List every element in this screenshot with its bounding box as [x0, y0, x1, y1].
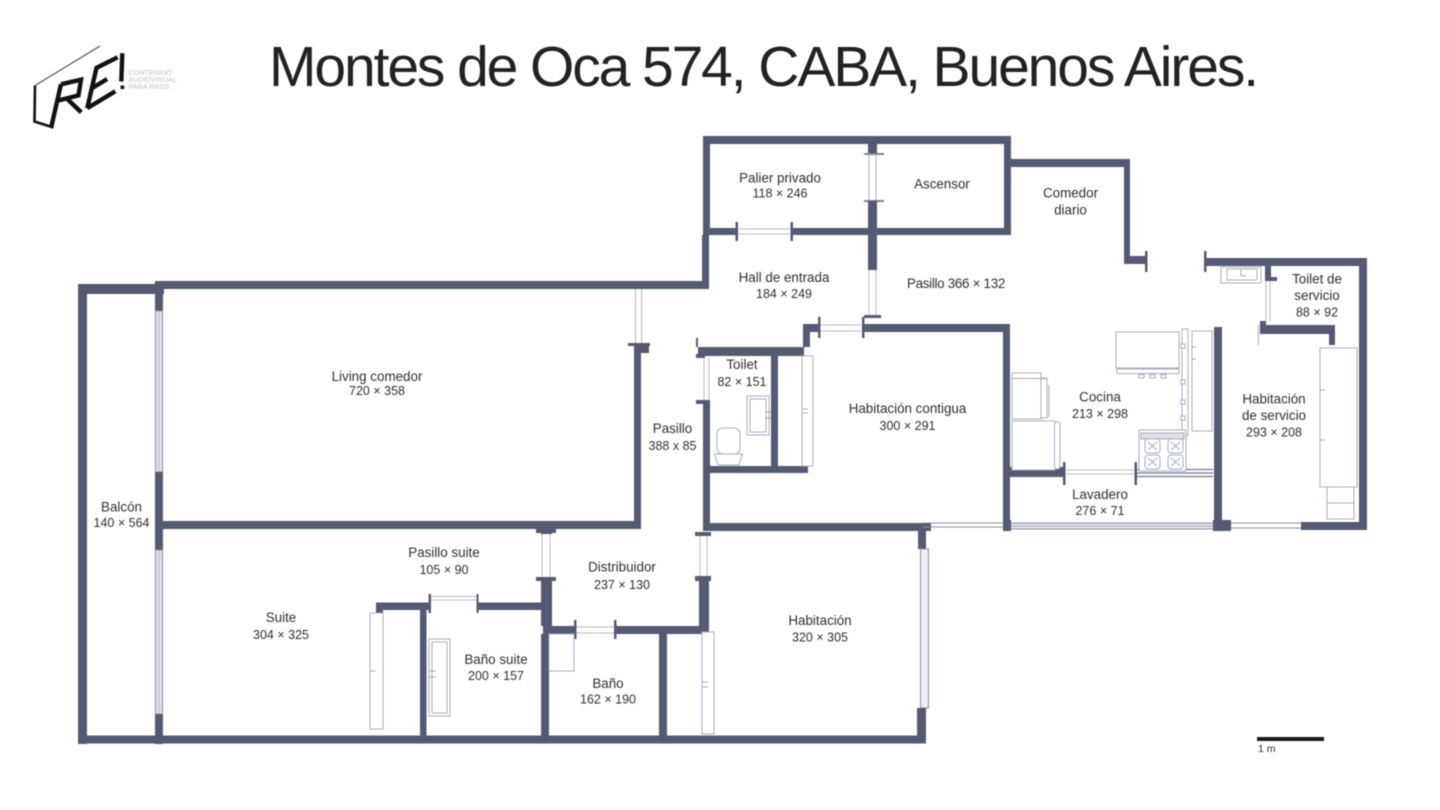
svg-text:105 × 90: 105 × 90 [419, 563, 468, 577]
svg-text:320 × 305: 320 × 305 [792, 631, 848, 645]
svg-text:Lavadero: Lavadero [1072, 487, 1128, 502]
svg-text:88 × 92: 88 × 92 [1296, 306, 1338, 320]
svg-text:Pasillo: Pasillo [653, 421, 692, 436]
svg-text:1 m: 1 m [1258, 743, 1276, 755]
svg-text:Habitación contigua: Habitación contigua [849, 401, 967, 416]
svg-text:82 × 151: 82 × 151 [717, 375, 766, 389]
svg-text:720 × 358: 720 × 358 [349, 384, 405, 398]
svg-text:388 x 85: 388 x 85 [649, 439, 697, 453]
svg-text:Toilet: Toilet [726, 357, 758, 372]
svg-text:184 × 249: 184 × 249 [756, 287, 812, 301]
svg-text:200 × 157: 200 × 157 [468, 669, 524, 683]
svg-text:Ascensor: Ascensor [914, 177, 970, 192]
svg-text:Hall de entrada: Hall de entrada [739, 270, 830, 285]
svg-text:diario: diario [1054, 203, 1087, 218]
svg-text:Cocina: Cocina [1079, 390, 1121, 405]
svg-text:Baño: Baño [592, 676, 623, 691]
svg-text:Balcón: Balcón [101, 500, 142, 515]
svg-text:140 × 564: 140 × 564 [94, 516, 150, 530]
svg-text:PARA RRSS: PARA RRSS [129, 82, 170, 91]
svg-text:Pasillo 366 × 132: Pasillo 366 × 132 [907, 276, 1005, 291]
svg-text:Suite: Suite [266, 610, 297, 625]
svg-text:Habitación: Habitación [788, 613, 851, 628]
svg-text:237 × 130: 237 × 130 [594, 578, 650, 592]
svg-text:Montes de Oca 574, CABA, Bueno: Montes de Oca 574, CABA, Buenos Aires. [269, 35, 1257, 99]
svg-text:300 × 291: 300 × 291 [880, 419, 936, 433]
svg-text:Living comedor: Living comedor [332, 369, 423, 384]
svg-text:Habitación: Habitación [1242, 392, 1305, 407]
svg-text:304 × 325: 304 × 325 [253, 628, 309, 642]
svg-text:118 × 246: 118 × 246 [752, 187, 807, 201]
svg-text:Comedor: Comedor [1043, 186, 1099, 201]
svg-text:276 × 71: 276 × 71 [1075, 504, 1124, 518]
svg-text:de servicio: de servicio [1242, 408, 1306, 423]
svg-text:Pasillo suite: Pasillo suite [408, 545, 479, 560]
svg-text:Baño suite: Baño suite [464, 652, 527, 667]
svg-text:servicio: servicio [1294, 288, 1339, 303]
svg-text:213 × 298: 213 × 298 [1072, 407, 1128, 421]
svg-text:162 × 190: 162 × 190 [580, 693, 636, 707]
svg-text:293 × 208: 293 × 208 [1246, 426, 1302, 440]
svg-text:Distribuidor: Distribuidor [588, 560, 656, 575]
svg-text:Palier privado: Palier privado [739, 171, 821, 186]
svg-text:Toilet de: Toilet de [1292, 272, 1342, 287]
